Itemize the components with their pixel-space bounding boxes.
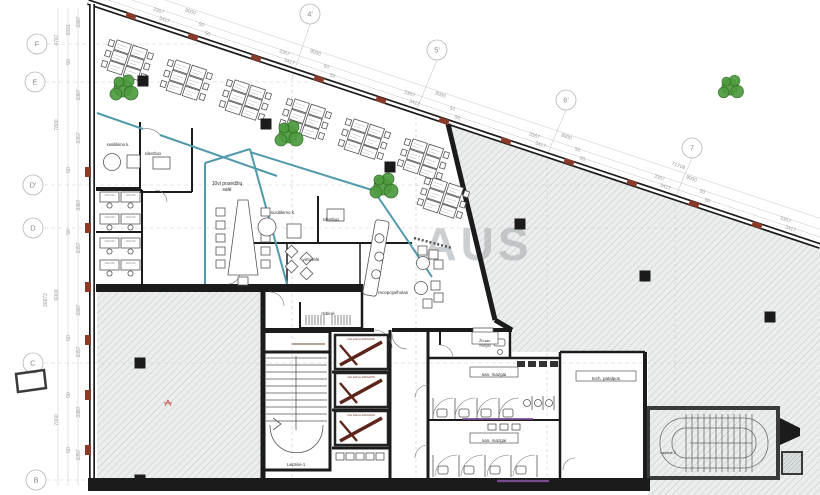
dim-label: 50 bbox=[66, 447, 72, 453]
office-desk-label: 1400x700 bbox=[104, 217, 115, 219]
dim-label: 50 bbox=[323, 63, 330, 71]
dim-label: 3387 bbox=[76, 89, 82, 100]
room-label: Laiptinė-1 bbox=[287, 462, 306, 467]
dim-label: 8000 bbox=[309, 48, 322, 57]
left-wall-pier bbox=[85, 223, 91, 233]
room-label: silentbox bbox=[323, 217, 340, 222]
entrance-canopy bbox=[16, 370, 46, 392]
office-desk bbox=[100, 260, 119, 270]
room-label: Laiptinė-2 bbox=[660, 451, 676, 455]
office-desk-label: 1400x700 bbox=[125, 195, 136, 197]
dim-label: 8000 bbox=[184, 7, 197, 16]
silentbox-desk bbox=[153, 157, 170, 169]
left-wall-pier bbox=[85, 390, 91, 400]
room-label: virtuvėlė bbox=[303, 257, 320, 262]
dim-label: 50 bbox=[579, 155, 586, 163]
left-wall-pier bbox=[85, 445, 91, 455]
office-desk-label: 1400x700 bbox=[125, 263, 136, 265]
dim-label: 3367 bbox=[653, 173, 666, 182]
plant-icon bbox=[110, 75, 138, 100]
floor-plan-canvas: AUS 336733673367336733673367341734173417… bbox=[0, 0, 820, 495]
room-label: recepcija/holas bbox=[378, 290, 409, 295]
office-desk bbox=[121, 238, 140, 248]
room-label: susitikimo k. bbox=[271, 210, 296, 215]
room-label: san. mazgai bbox=[470, 433, 518, 443]
column bbox=[515, 219, 526, 230]
desk-cluster bbox=[337, 117, 391, 162]
dim-label: 50 bbox=[204, 30, 211, 38]
svg-text:virtuvėlė: virtuvėlė bbox=[303, 257, 320, 262]
room-label: silentbox bbox=[145, 151, 162, 156]
svg-text:san. mazgai: san. mazgai bbox=[482, 372, 506, 377]
room-label: susitikimo k. bbox=[107, 142, 130, 147]
dim-label: 50 bbox=[329, 72, 336, 80]
grid-bubble-label: F bbox=[35, 40, 40, 49]
lift-label: Lifto kabina 2000x2000 bbox=[347, 413, 375, 417]
dim-label: 8000 bbox=[560, 132, 573, 141]
office-desk bbox=[100, 214, 119, 224]
office-desk bbox=[121, 260, 140, 270]
svg-text:rūbinė: rūbinė bbox=[321, 311, 335, 317]
dim-label: 3387 bbox=[76, 406, 82, 417]
column bbox=[135, 358, 146, 369]
dim-label: 3387 bbox=[76, 304, 82, 315]
dim-label: 3357 bbox=[76, 449, 82, 460]
svg-text:10vi posėdžių: 10vi posėdžių bbox=[212, 181, 243, 187]
dim-label: 8000 bbox=[434, 90, 447, 99]
svg-text:salė: salė bbox=[222, 187, 231, 193]
svg-text:Laiptinė-2: Laiptinė-2 bbox=[660, 451, 676, 455]
dim-label: 3367 bbox=[528, 131, 541, 140]
left-wall-pier bbox=[85, 335, 91, 345]
office-desk-label: 1400x700 bbox=[104, 195, 115, 197]
hatch-bottom-left-area bbox=[97, 290, 263, 478]
lift-shaft: Lifto kabina 2000x2000 bbox=[335, 335, 388, 369]
left-wall-pier bbox=[85, 167, 91, 177]
grid-bubble-label: E bbox=[32, 78, 37, 87]
grid-bubble-label: 6' bbox=[563, 96, 569, 105]
left-wall-pier bbox=[85, 282, 91, 292]
desk-cluster bbox=[218, 78, 272, 123]
dim-label: 36872 bbox=[43, 293, 49, 307]
grid-bubble-label: D bbox=[30, 224, 36, 233]
dim-label: 3387 bbox=[76, 16, 82, 27]
room-label: 10vi posėdžiųsalė bbox=[212, 181, 243, 193]
staircase-1 bbox=[263, 332, 330, 470]
dim-label: 50 bbox=[66, 392, 72, 398]
dim-label: 3357 bbox=[76, 242, 82, 253]
plant-icon bbox=[370, 173, 398, 198]
lift-lobby-lockers bbox=[336, 453, 384, 460]
kitchen-tables bbox=[285, 245, 313, 280]
dim-label: 7000 bbox=[54, 414, 60, 425]
office-desk-label: 1400x700 bbox=[125, 217, 136, 219]
dim-label: 50 bbox=[699, 188, 706, 196]
svg-text:san. mazgai: san. mazgai bbox=[482, 438, 506, 443]
lift-shaft: Lifto kabina 2000x2000 bbox=[335, 411, 388, 445]
office-desk bbox=[121, 192, 140, 202]
conference-table bbox=[228, 200, 258, 275]
office-room-desks: 1400x7001400x7001400x7001400x7001400x700… bbox=[100, 192, 140, 276]
dim-label: 3357 bbox=[76, 346, 82, 357]
dim-label: 50 bbox=[66, 335, 72, 341]
grid-bubble-label: 4' bbox=[307, 10, 313, 19]
room-label: san. mazgai bbox=[470, 367, 518, 377]
bottom-wall bbox=[88, 478, 650, 491]
svg-text:Laiptinė-1: Laiptinė-1 bbox=[287, 462, 306, 467]
floor-plan: AUS 336733673367336733673367341734173417… bbox=[0, 0, 820, 495]
grid-bubble-label: 7 bbox=[690, 144, 694, 153]
dim-label: 50 bbox=[66, 167, 72, 173]
svg-text:tech. patalpos: tech. patalpos bbox=[592, 376, 621, 381]
dim-label: 4787 bbox=[54, 34, 60, 45]
room-label: tech. patalpos bbox=[576, 371, 636, 381]
dim-label: 3387 bbox=[76, 199, 82, 210]
column bbox=[385, 162, 396, 173]
grid-bubble-label: D' bbox=[30, 181, 37, 190]
dim-label: 3357 bbox=[76, 132, 82, 143]
dim-label: 7800 bbox=[54, 119, 60, 130]
desk-cluster bbox=[396, 137, 450, 182]
office-desk-label: 1400x700 bbox=[104, 241, 115, 243]
column bbox=[640, 271, 651, 282]
dim-label: 71708 bbox=[671, 161, 686, 171]
desk-cluster bbox=[159, 58, 213, 103]
column bbox=[765, 312, 776, 323]
grid-bubble-label: B bbox=[33, 476, 38, 485]
svg-text:silentbox: silentbox bbox=[145, 151, 162, 156]
dim-label: 3367 bbox=[152, 6, 165, 15]
svg-text:susitikimo k.: susitikimo k. bbox=[271, 210, 296, 215]
room-label: rūbinė bbox=[321, 311, 335, 317]
dim-label: 50 bbox=[66, 59, 72, 65]
dim-label: 50 bbox=[454, 114, 461, 122]
grid-bubble-label: 5' bbox=[434, 46, 440, 55]
meeting2-table-round bbox=[258, 218, 276, 236]
dim-label: 6000 bbox=[54, 289, 60, 300]
office-desk bbox=[100, 238, 119, 248]
meeting-table-round bbox=[104, 154, 121, 171]
dim-label: 50 bbox=[449, 105, 456, 113]
svg-text:susitikimo k.: susitikimo k. bbox=[107, 142, 130, 147]
column bbox=[138, 76, 149, 87]
lift-shaft: Lifto kabina 2000x2000 bbox=[335, 373, 388, 407]
lift-shafts: Lifto kabina 2000x2000Lifto kabina 2000x… bbox=[335, 335, 388, 445]
svg-text:recepcija/holas: recepcija/holas bbox=[378, 290, 409, 295]
grid-bubble-label: C bbox=[30, 359, 36, 368]
dim-label: 3331 bbox=[66, 24, 72, 35]
column bbox=[135, 475, 146, 486]
svg-text:silentbox: silentbox bbox=[323, 217, 340, 222]
svg-text:ŽN san.: ŽN san. bbox=[479, 338, 491, 343]
lift-label: Lifto kabina 2000x2000 bbox=[347, 375, 375, 379]
office-desk bbox=[121, 214, 140, 224]
dim-label: 8000 bbox=[685, 174, 698, 183]
office-desk-label: 1400x700 bbox=[125, 241, 136, 243]
lift-label: Lifto kabina 2000x2000 bbox=[347, 337, 375, 341]
reception-desk bbox=[363, 219, 390, 296]
svg-text:mazgas: mazgas bbox=[479, 344, 491, 348]
column bbox=[261, 119, 272, 130]
dim-label: 50 bbox=[66, 229, 72, 235]
office-desk-label: 1400x700 bbox=[104, 263, 115, 265]
dim-label: 50 bbox=[198, 21, 205, 29]
dim-label: 50 bbox=[574, 146, 581, 154]
dim-label: 50 bbox=[704, 197, 711, 205]
office-desk bbox=[100, 192, 119, 202]
plant-icon bbox=[718, 75, 743, 98]
